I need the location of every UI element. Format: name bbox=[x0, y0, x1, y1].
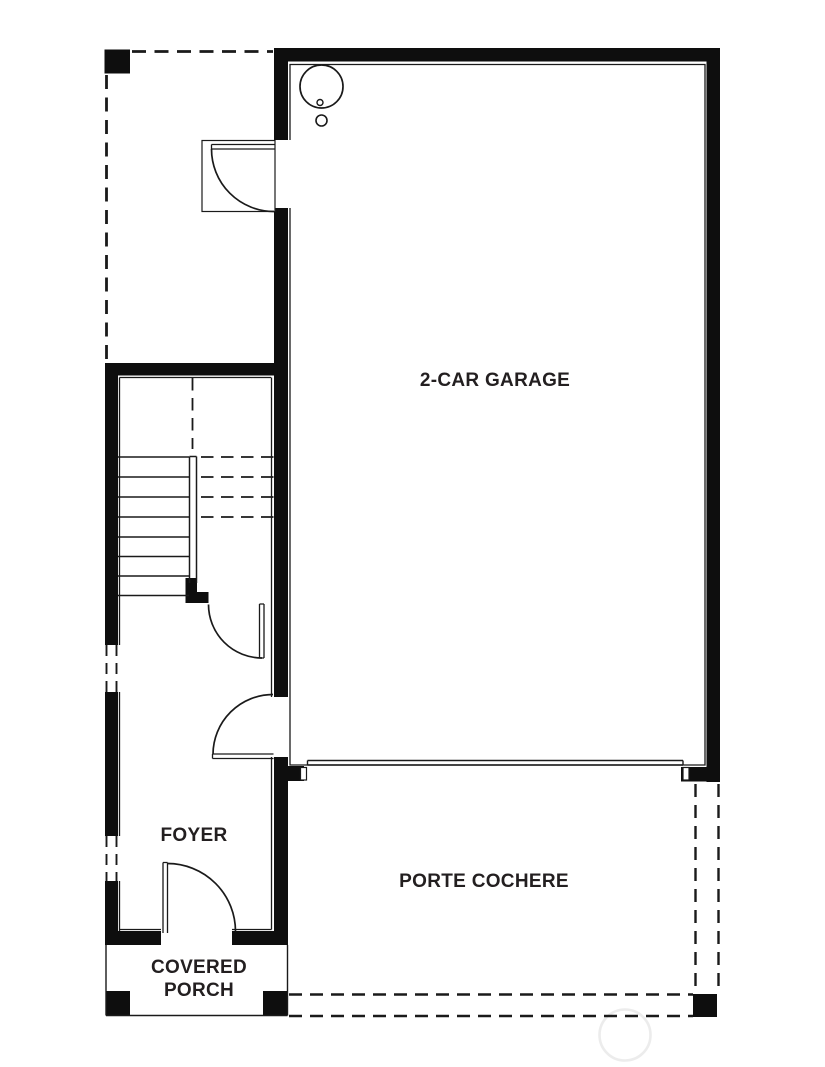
porch-wall-left bbox=[105, 931, 161, 945]
stair-hall-top-wall bbox=[105, 363, 288, 376]
window-1 bbox=[104, 645, 119, 692]
garage-top-wall bbox=[274, 48, 720, 62]
plan-background bbox=[0, 0, 825, 1067]
porch-wall-right bbox=[232, 931, 288, 945]
covered-porch-label: COVERED PORCH bbox=[138, 956, 260, 1002]
left-wall-b bbox=[105, 692, 118, 836]
garage-door-jamb-left bbox=[301, 768, 307, 781]
floor-plan: 2-CAR GARAGE FOYER PORTE COCHERE COVERED… bbox=[0, 0, 825, 1067]
garage-right-wall bbox=[707, 48, 721, 782]
garage-door-jamb-right bbox=[683, 768, 689, 781]
porch-post-left bbox=[106, 991, 131, 1016]
garage-side-door bbox=[202, 141, 275, 212]
window-2 bbox=[104, 836, 119, 881]
post-top-left bbox=[105, 50, 131, 74]
garage-left-wall-main bbox=[274, 208, 288, 697]
porte-cochere-label: PORTE COCHERE bbox=[399, 871, 569, 893]
floor-plan-drawing bbox=[0, 0, 825, 1067]
porte-cochere-post bbox=[693, 994, 717, 1017]
foyer-right-wall bbox=[274, 757, 288, 945]
porch-post-right bbox=[263, 991, 288, 1016]
left-wall-a bbox=[105, 375, 118, 645]
stair-stub-lower bbox=[186, 592, 209, 603]
garage-label: 2-CAR GARAGE bbox=[420, 370, 570, 392]
garage-left-wall-upper bbox=[274, 48, 288, 140]
foyer-label: FOYER bbox=[161, 825, 228, 847]
